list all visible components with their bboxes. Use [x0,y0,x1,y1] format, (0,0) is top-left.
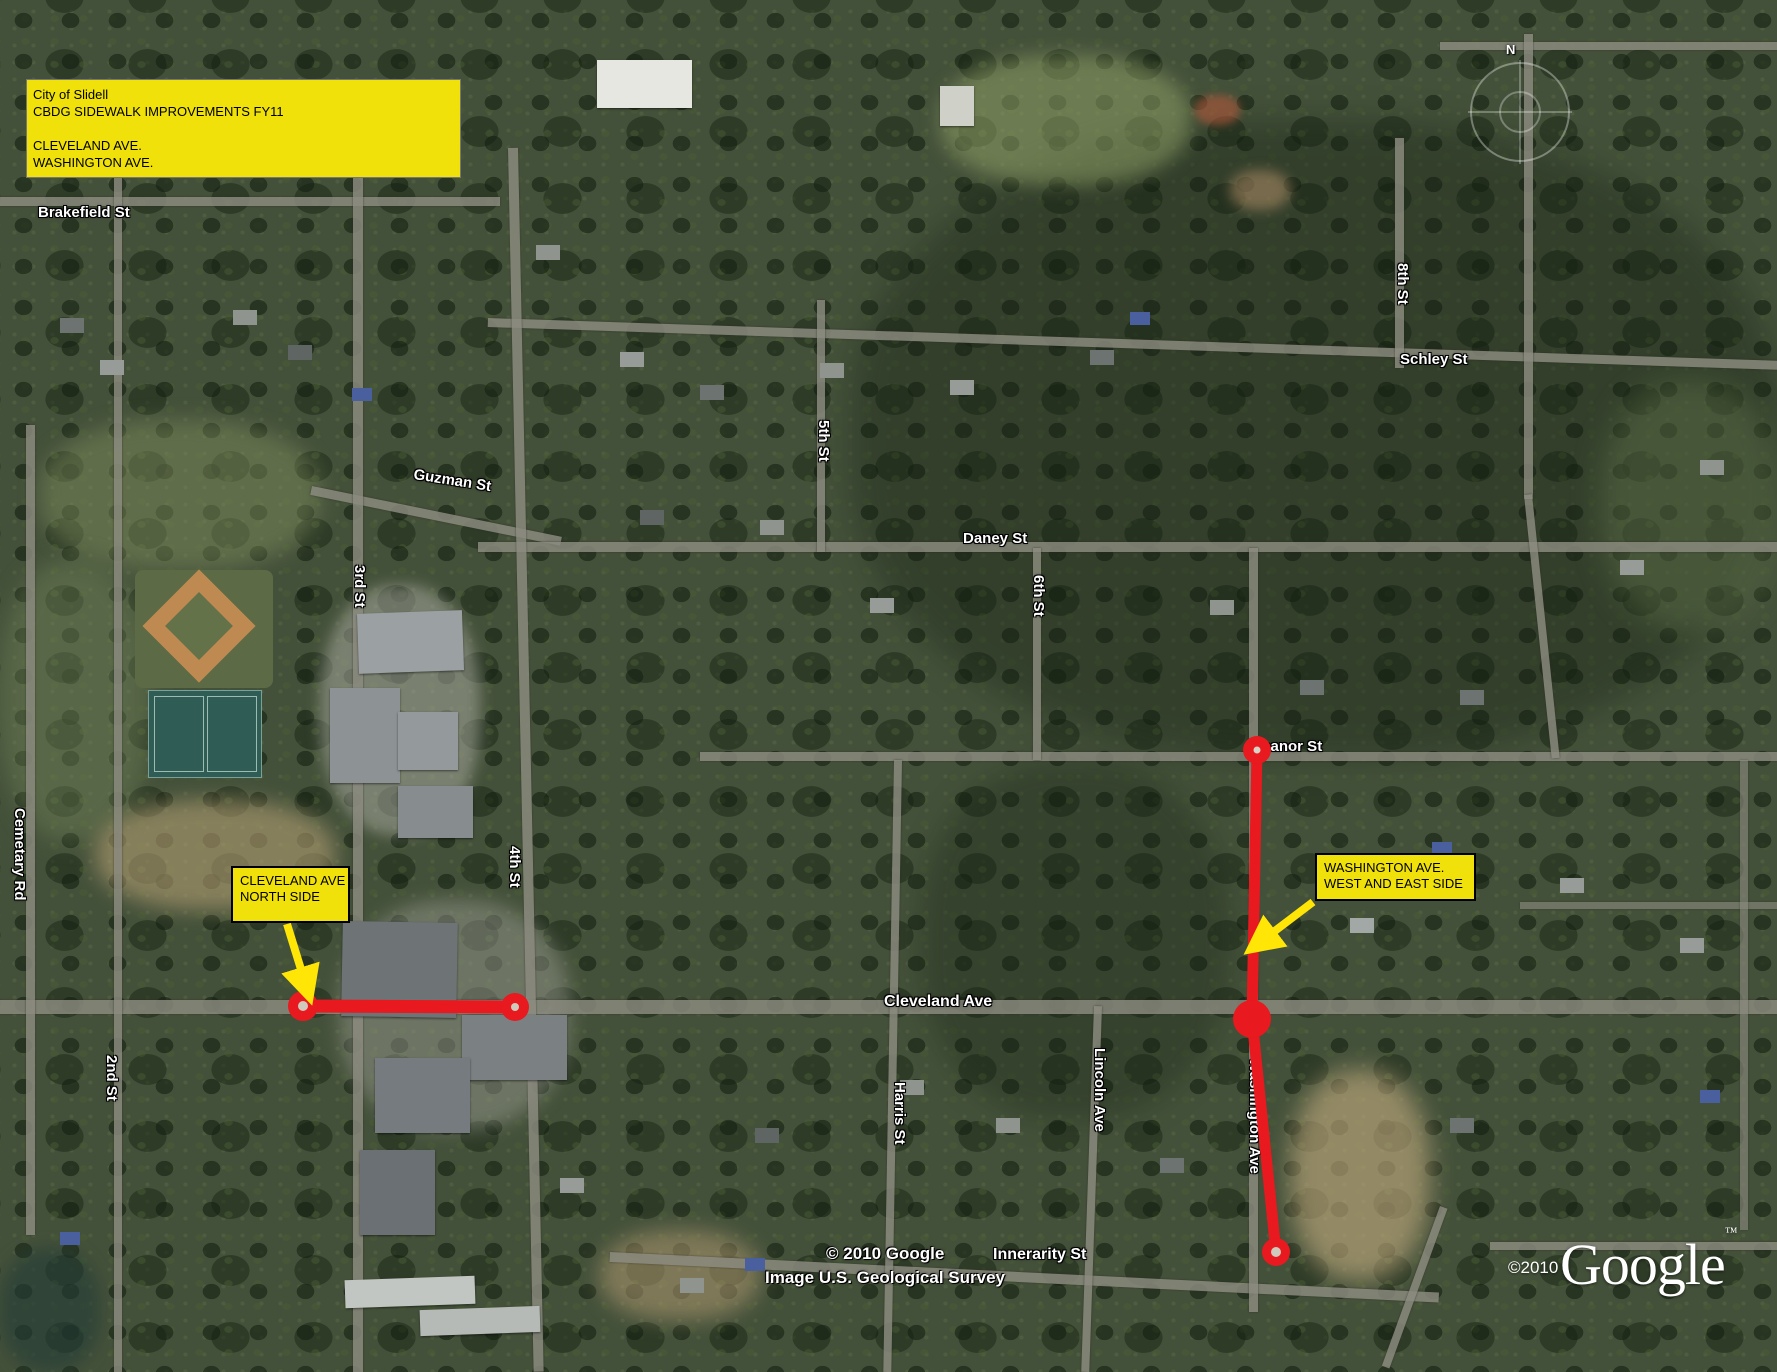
title-line: City of Slidell [33,86,460,103]
map-screenshot: Brakefield St Schley St 8th St Guzman St… [0,0,1777,1372]
red-endpoint-hole [1271,1247,1281,1257]
red-endpoint-hole [298,1001,308,1011]
callout-line: CLEVELAND AVE [240,873,341,889]
title-line: WASHINGTON AVE. [33,154,460,171]
title-line [33,120,460,137]
satellite-imagery: Brakefield St Schley St 8th St Guzman St… [0,0,1777,1372]
title-line: CLEVELAND AVE. [33,137,460,154]
imagery-credit-watermark: Image U.S. Geological Survey [765,1268,1005,1288]
callout-arrow-cleveland [287,924,308,992]
red-intersection-dot [1233,1000,1271,1038]
title-box: City of Slidell CBDG SIDEWALK IMPROVEMEN… [26,79,461,178]
red-endpoint-hole [1254,747,1261,754]
title-line: CBDG SIDEWALK IMPROVEMENTS FY11 [33,103,460,120]
logo-year-watermark: ©2010 [1508,1258,1558,1278]
map-copyright-watermark: © 2010 Google [826,1244,944,1264]
callout-washington-ave: WASHINGTON AVE. WEST AND EAST SIDE [1315,853,1476,901]
callout-line: WEST AND EAST SIDE [1324,876,1467,892]
project-overlay [0,0,1777,1372]
trademark-symbol: ™ [1725,1224,1738,1239]
callout-arrow-washington [1255,902,1313,946]
callout-line: WASHINGTON AVE. [1324,860,1467,876]
callout-cleveland-ave: CLEVELAND AVE NORTH SIDE [231,866,350,923]
callout-line: NORTH SIDE [240,889,341,905]
google-logo: Google™ [1560,1224,1738,1298]
red-endpoint-hole [511,1003,519,1011]
red-segment-cleveland [303,1006,515,1007]
